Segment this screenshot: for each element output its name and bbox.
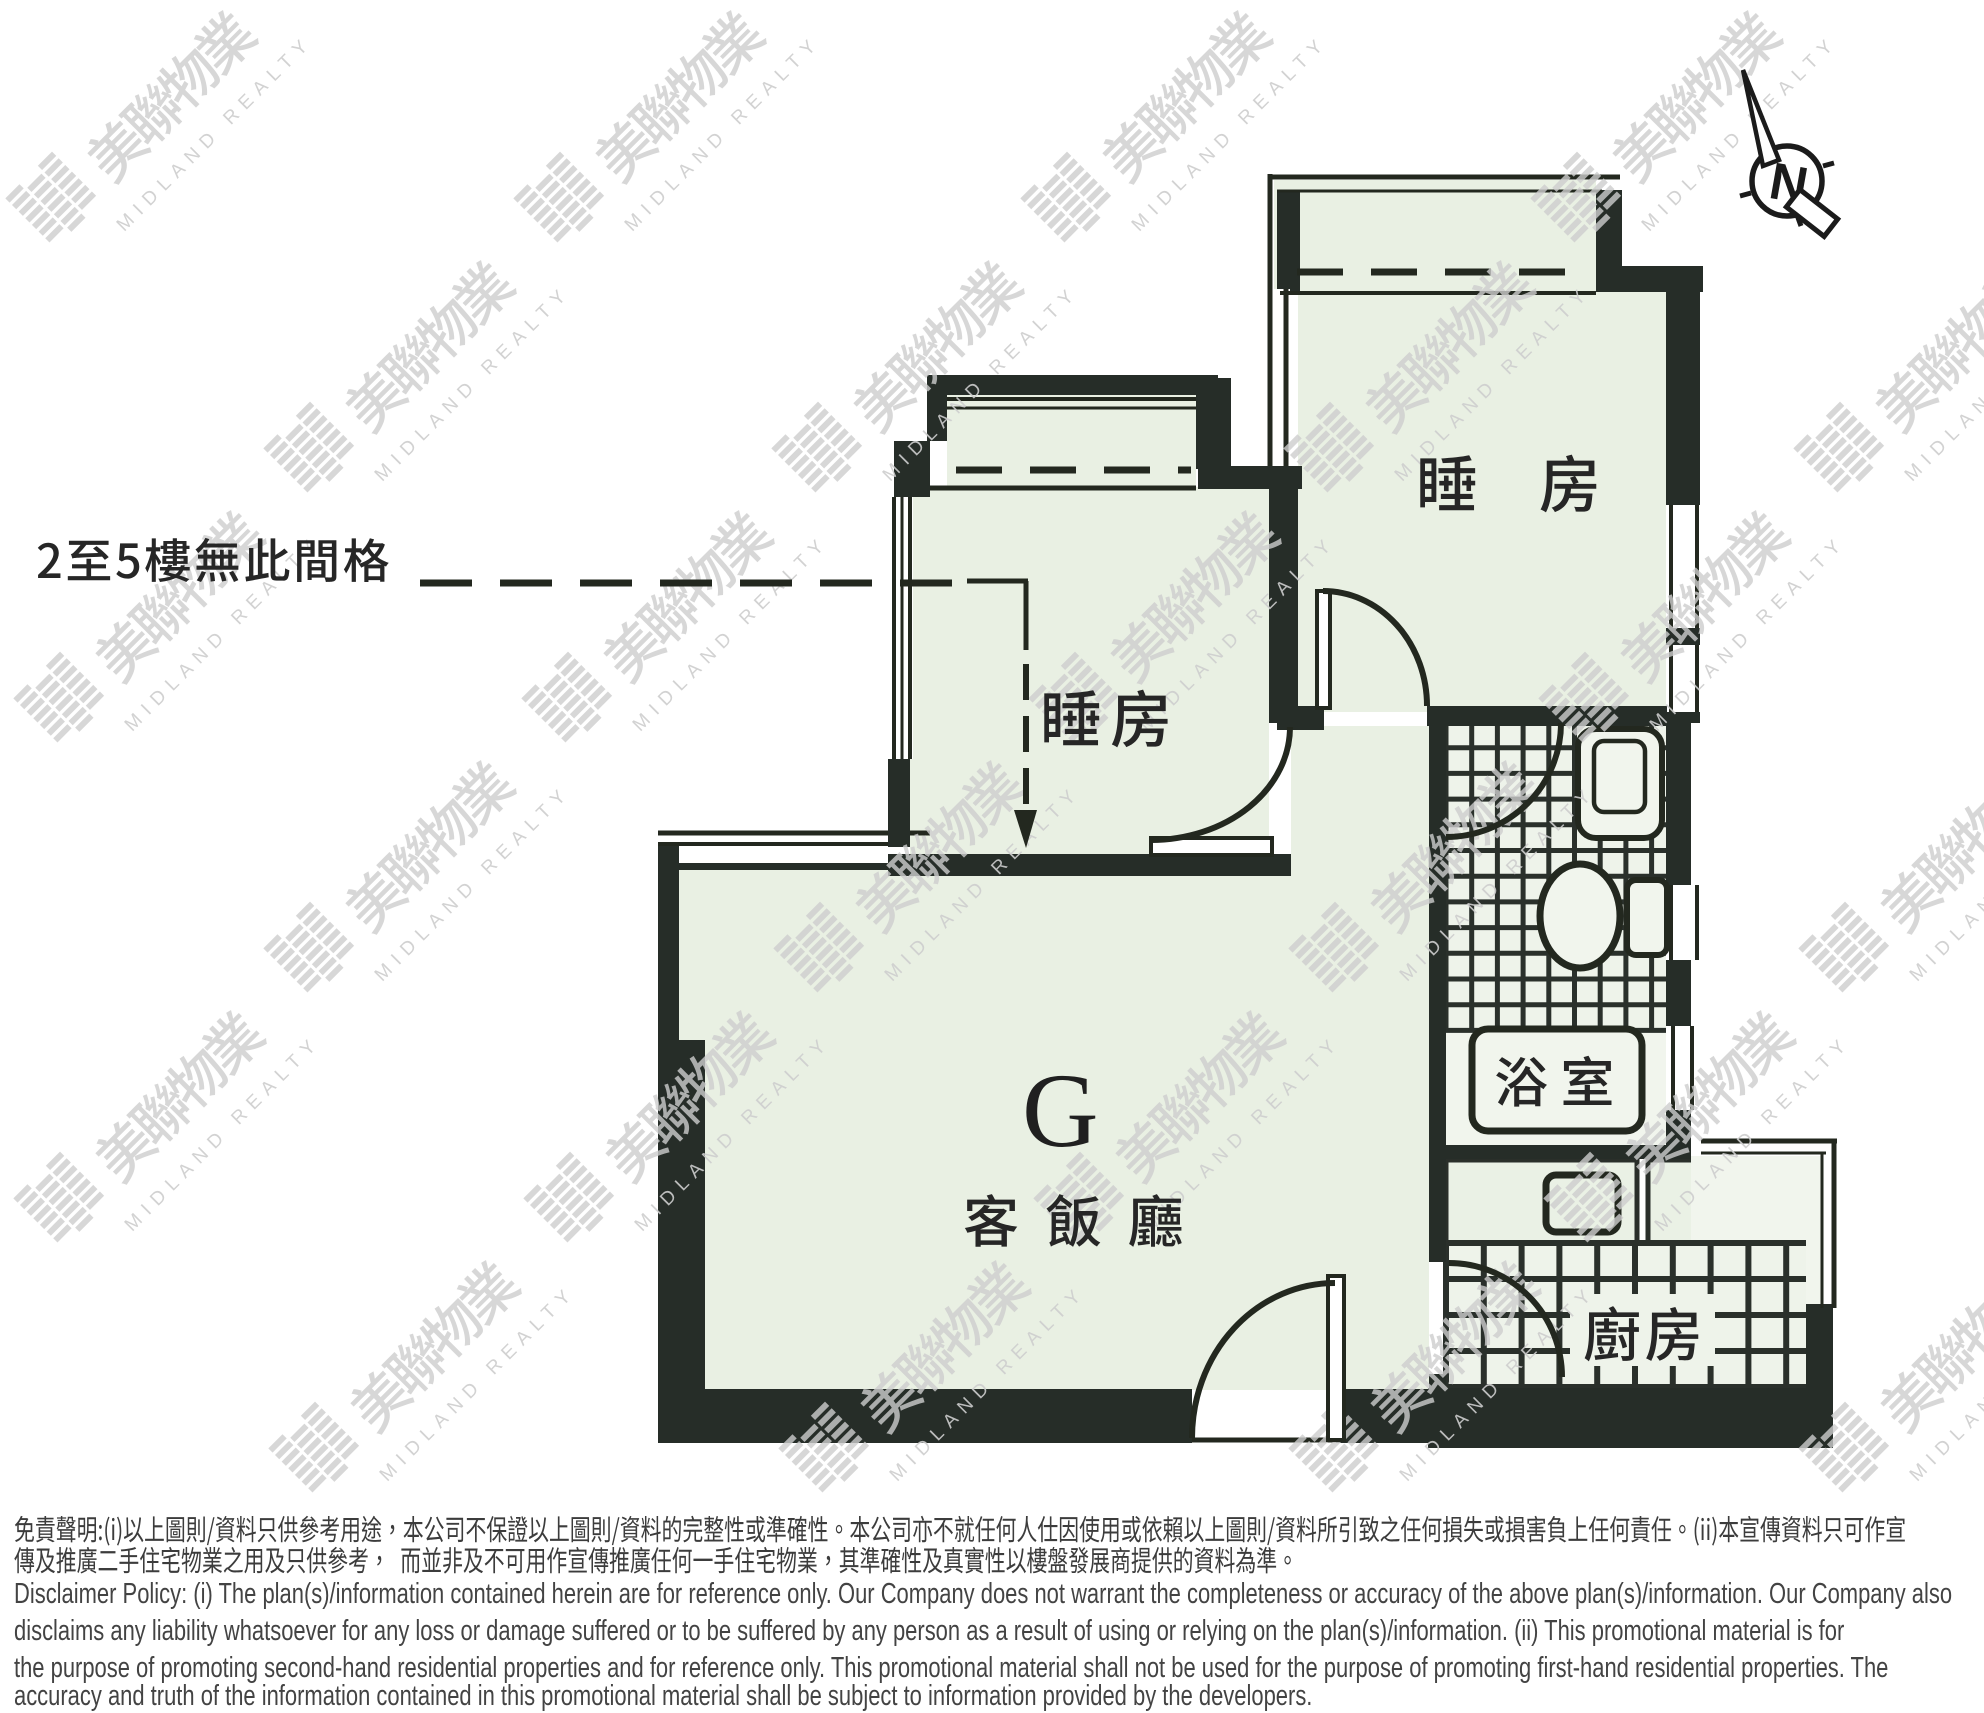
svg-text:G: G [1022, 1052, 1099, 1169]
